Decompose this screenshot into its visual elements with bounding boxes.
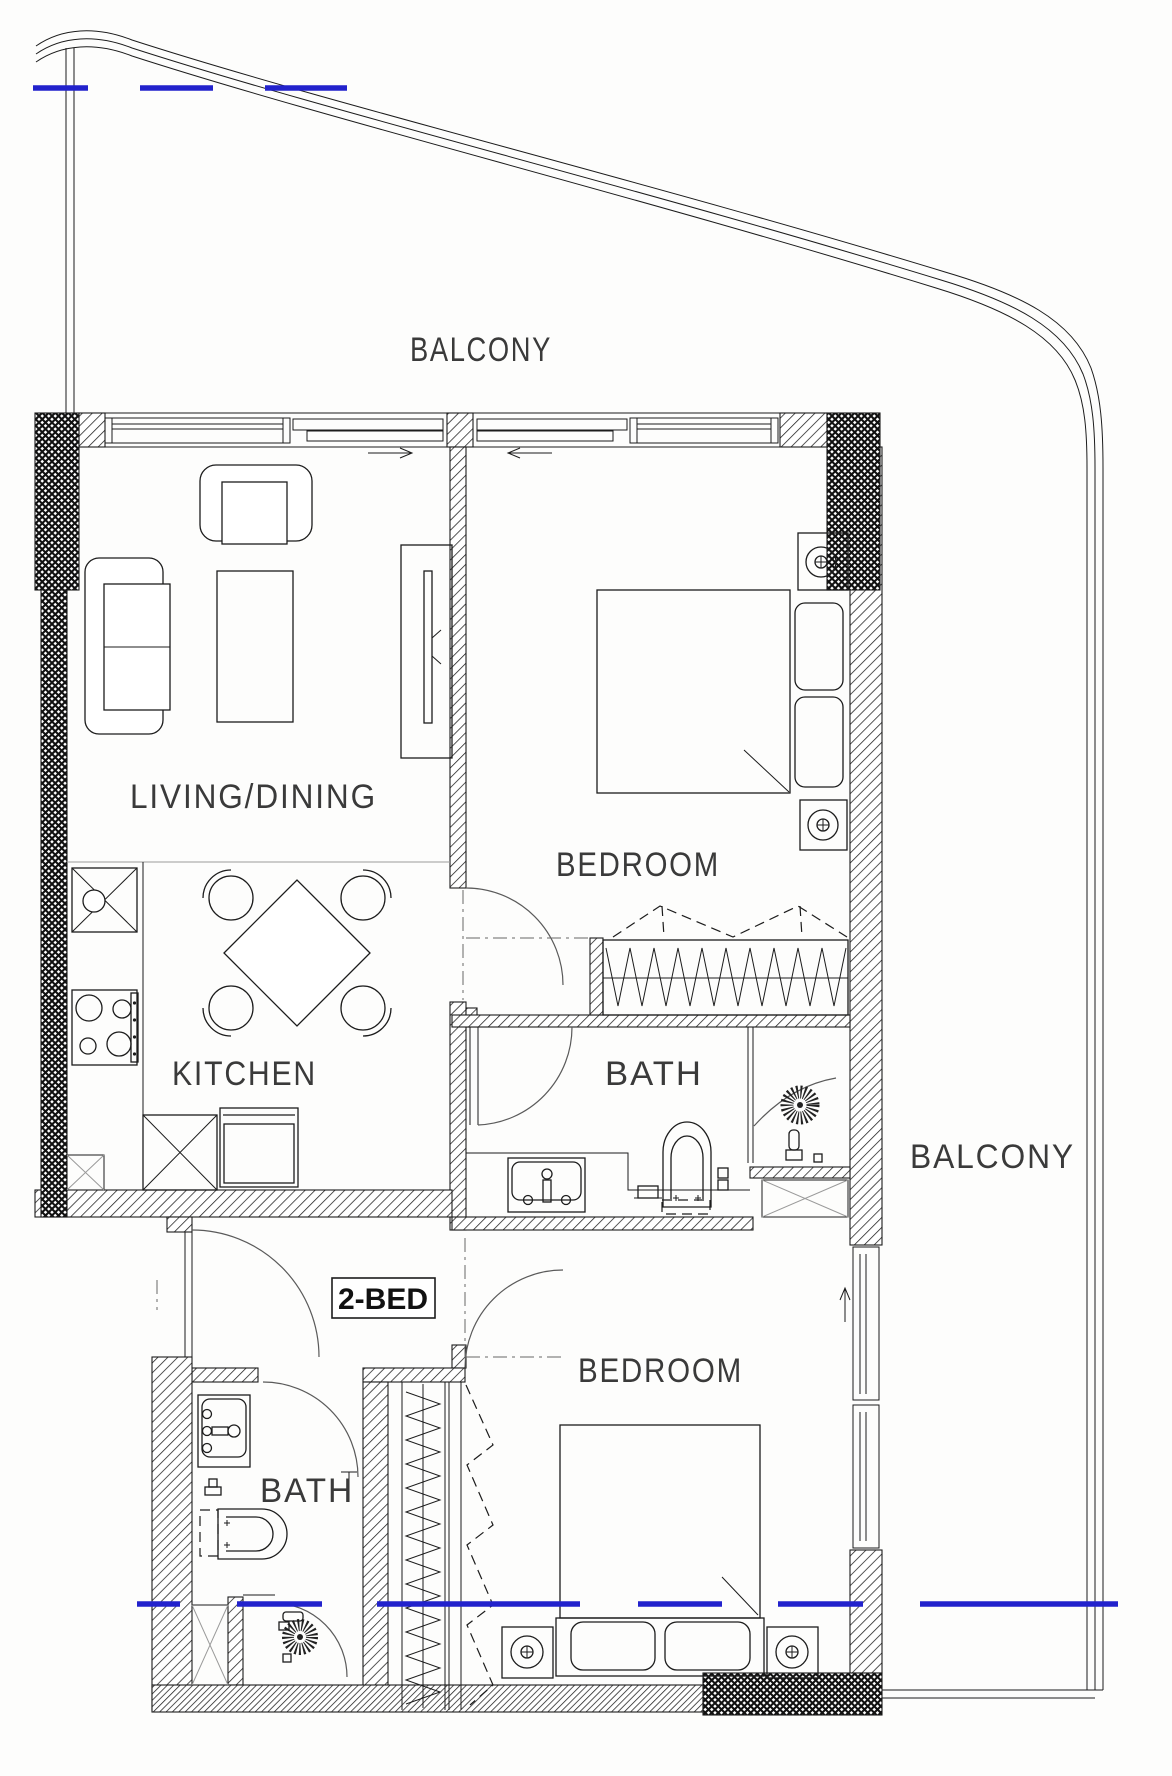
shower-door-arc xyxy=(754,1078,836,1126)
coffee-table-symbol xyxy=(217,571,293,722)
washer-symbol xyxy=(220,1108,298,1187)
stove-symbol xyxy=(72,990,138,1065)
bed-symbol xyxy=(597,590,843,793)
unit-label-box: 2-BED xyxy=(332,1278,435,1318)
windows-right xyxy=(840,1247,879,1548)
label-bedroom2: BEDROOM xyxy=(578,1352,743,1390)
bed-symbol xyxy=(556,1425,764,1676)
label-bath2: BATH xyxy=(260,1472,354,1510)
vanity-symbol xyxy=(508,1158,585,1212)
bath2-east-wall xyxy=(363,1382,388,1710)
bath2-west-wall xyxy=(152,1357,192,1710)
floor-drain-icon xyxy=(634,1186,662,1198)
bath1-south-wall xyxy=(452,1217,753,1230)
closet-doors-dashed xyxy=(466,1385,493,1705)
label-bedroom1: BEDROOM xyxy=(556,846,720,884)
label-bath1: BATH xyxy=(605,1055,703,1093)
bedroom1-door xyxy=(463,888,590,1000)
corner-block-topleft xyxy=(35,413,79,590)
label-balcony-right: BALCONY xyxy=(910,1138,1075,1176)
floorplan-page: 2-BED xyxy=(0,0,1172,1776)
bedroom1-area xyxy=(463,533,848,1015)
nightstand-lamp-icon xyxy=(767,1627,818,1678)
kitchen-area xyxy=(67,862,298,1190)
shower-door-arc xyxy=(273,1603,347,1677)
fridge-symbol xyxy=(143,1115,217,1190)
bedroom2-door xyxy=(465,1238,563,1368)
duct-shaft xyxy=(67,1155,104,1190)
hallway: 2-BED xyxy=(157,1230,563,1368)
toilet-symbol xyxy=(200,1509,287,1559)
shower-tray xyxy=(192,1605,228,1685)
wardrobe-doors-dashed xyxy=(613,906,847,937)
floorplan-drawing: 2-BED xyxy=(0,0,1172,1776)
corner-block-bottomright xyxy=(703,1673,882,1715)
vanity-symbol xyxy=(198,1395,250,1467)
shower-drain-icon xyxy=(288,1625,312,1649)
unit-label: 2-BED xyxy=(338,1283,428,1316)
armchair-symbol xyxy=(200,465,312,544)
wall-segment xyxy=(79,413,105,447)
corner-block-topright xyxy=(827,413,880,590)
dining-set-symbol xyxy=(203,870,391,1036)
ac-unit-icon xyxy=(800,800,847,850)
bath1-door xyxy=(470,1027,572,1125)
closet-symbol xyxy=(402,1382,493,1710)
shower-head-icon xyxy=(787,1092,813,1118)
kitchen-sink-symbol xyxy=(72,868,137,932)
nightstand-lamp-icon xyxy=(502,1627,553,1678)
label-balcony-top: BALCONY xyxy=(410,331,552,369)
kitchen-south-wall xyxy=(35,1190,452,1217)
sofa-symbol xyxy=(85,558,170,734)
toilet-roll-icon xyxy=(205,1479,221,1495)
living-room xyxy=(67,465,452,1036)
label-kitchen: KITCHEN xyxy=(172,1055,317,1093)
toilet-symbol xyxy=(662,1122,711,1214)
shower-mixer-icon xyxy=(786,1130,822,1162)
left-party-wall xyxy=(41,590,67,1217)
bath2-area xyxy=(192,1382,358,1685)
windows-top xyxy=(105,418,778,458)
tv-unit-symbol xyxy=(401,545,452,758)
label-living-dining: LIVING/DINING xyxy=(130,778,377,816)
entry-door xyxy=(157,1230,319,1357)
toilet-roll-icon xyxy=(718,1168,728,1190)
duct-shaft xyxy=(762,1180,848,1217)
wardrobe-symbol xyxy=(603,940,848,1015)
wardrobe1-south-wall xyxy=(452,1015,850,1027)
south-wall xyxy=(152,1685,703,1712)
bedroom2-area xyxy=(402,1382,818,1710)
